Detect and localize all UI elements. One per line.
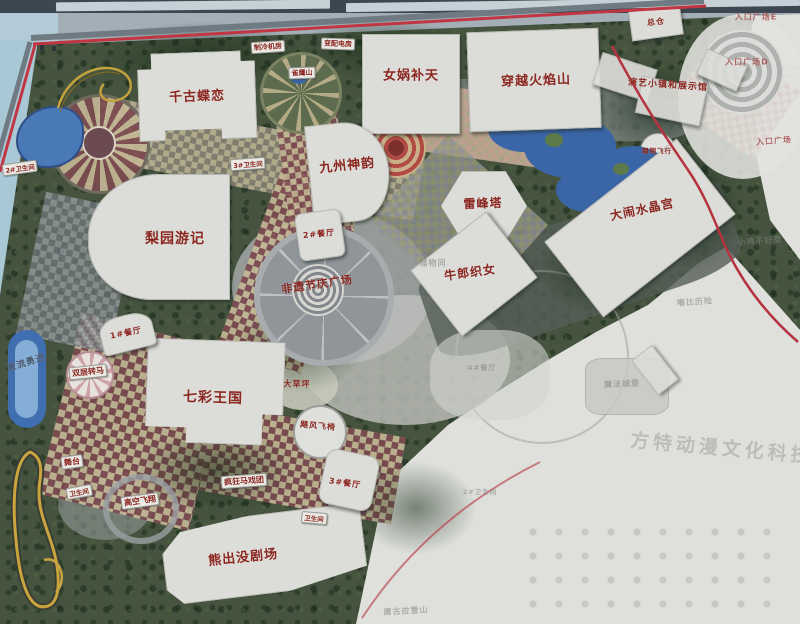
label-nuwa: 女娲补天 (383, 65, 439, 84)
label-zhileng: 制冷机房 (251, 40, 286, 54)
label-wcB: 卫生间 (301, 511, 327, 525)
river-island (613, 163, 629, 175)
sky-flyer-ring (103, 474, 179, 544)
label-qiangu: 千古蝶恋 (169, 85, 226, 106)
building-nuwabutian (362, 34, 460, 134)
label-wc3: 3#卫生间 (230, 157, 266, 171)
label-leifengta: 雷峰塔 (463, 194, 503, 212)
label-bianpei: 变配电房 (321, 37, 355, 50)
label-canting4: 4#餐厅 (468, 363, 497, 373)
label-tanggula: 唐古拉雪山 (383, 604, 429, 617)
label-wm: 方特动漫文化科技 (629, 426, 800, 469)
garden-circle (260, 52, 342, 134)
label-plazaE: 入口广场E (735, 12, 777, 23)
ghost-plaza (430, 330, 550, 420)
label-queying: 雀鹰山 (288, 67, 315, 80)
ghost-trees (520, 520, 780, 620)
river-island (545, 133, 563, 147)
fountain-center (388, 140, 404, 156)
label-huoyan: 穿越火焰山 (501, 68, 572, 89)
label-dacaoping: 大草坪 (284, 379, 311, 390)
label-mofa: 魔法城堡 (604, 378, 640, 390)
label-qicai: 七彩王国 (183, 386, 244, 408)
label-chuwu: 储物间 (420, 258, 447, 269)
label-liyuan: 梨园游记 (145, 228, 205, 248)
label-aoxiang: 翱翔飞行 (642, 145, 672, 155)
label-wcF: 2#卫生间 (463, 486, 497, 496)
label-dubi: 嘟比历险 (677, 295, 714, 308)
label-plazaD: 入口广场D (725, 57, 769, 68)
clip-icon (52, 46, 56, 51)
park-map-photo: 千古蝶恋女娲补天穿越火焰山总仓梨园游记九州神韵2#餐厅雷峰塔牛郎织女大闹水晶宫非… (0, 0, 800, 624)
flume-lane (15, 340, 38, 418)
label-zongcang: 总仓 (646, 16, 665, 29)
clip-icon (40, 45, 44, 50)
radial-plaza-center (82, 126, 116, 160)
